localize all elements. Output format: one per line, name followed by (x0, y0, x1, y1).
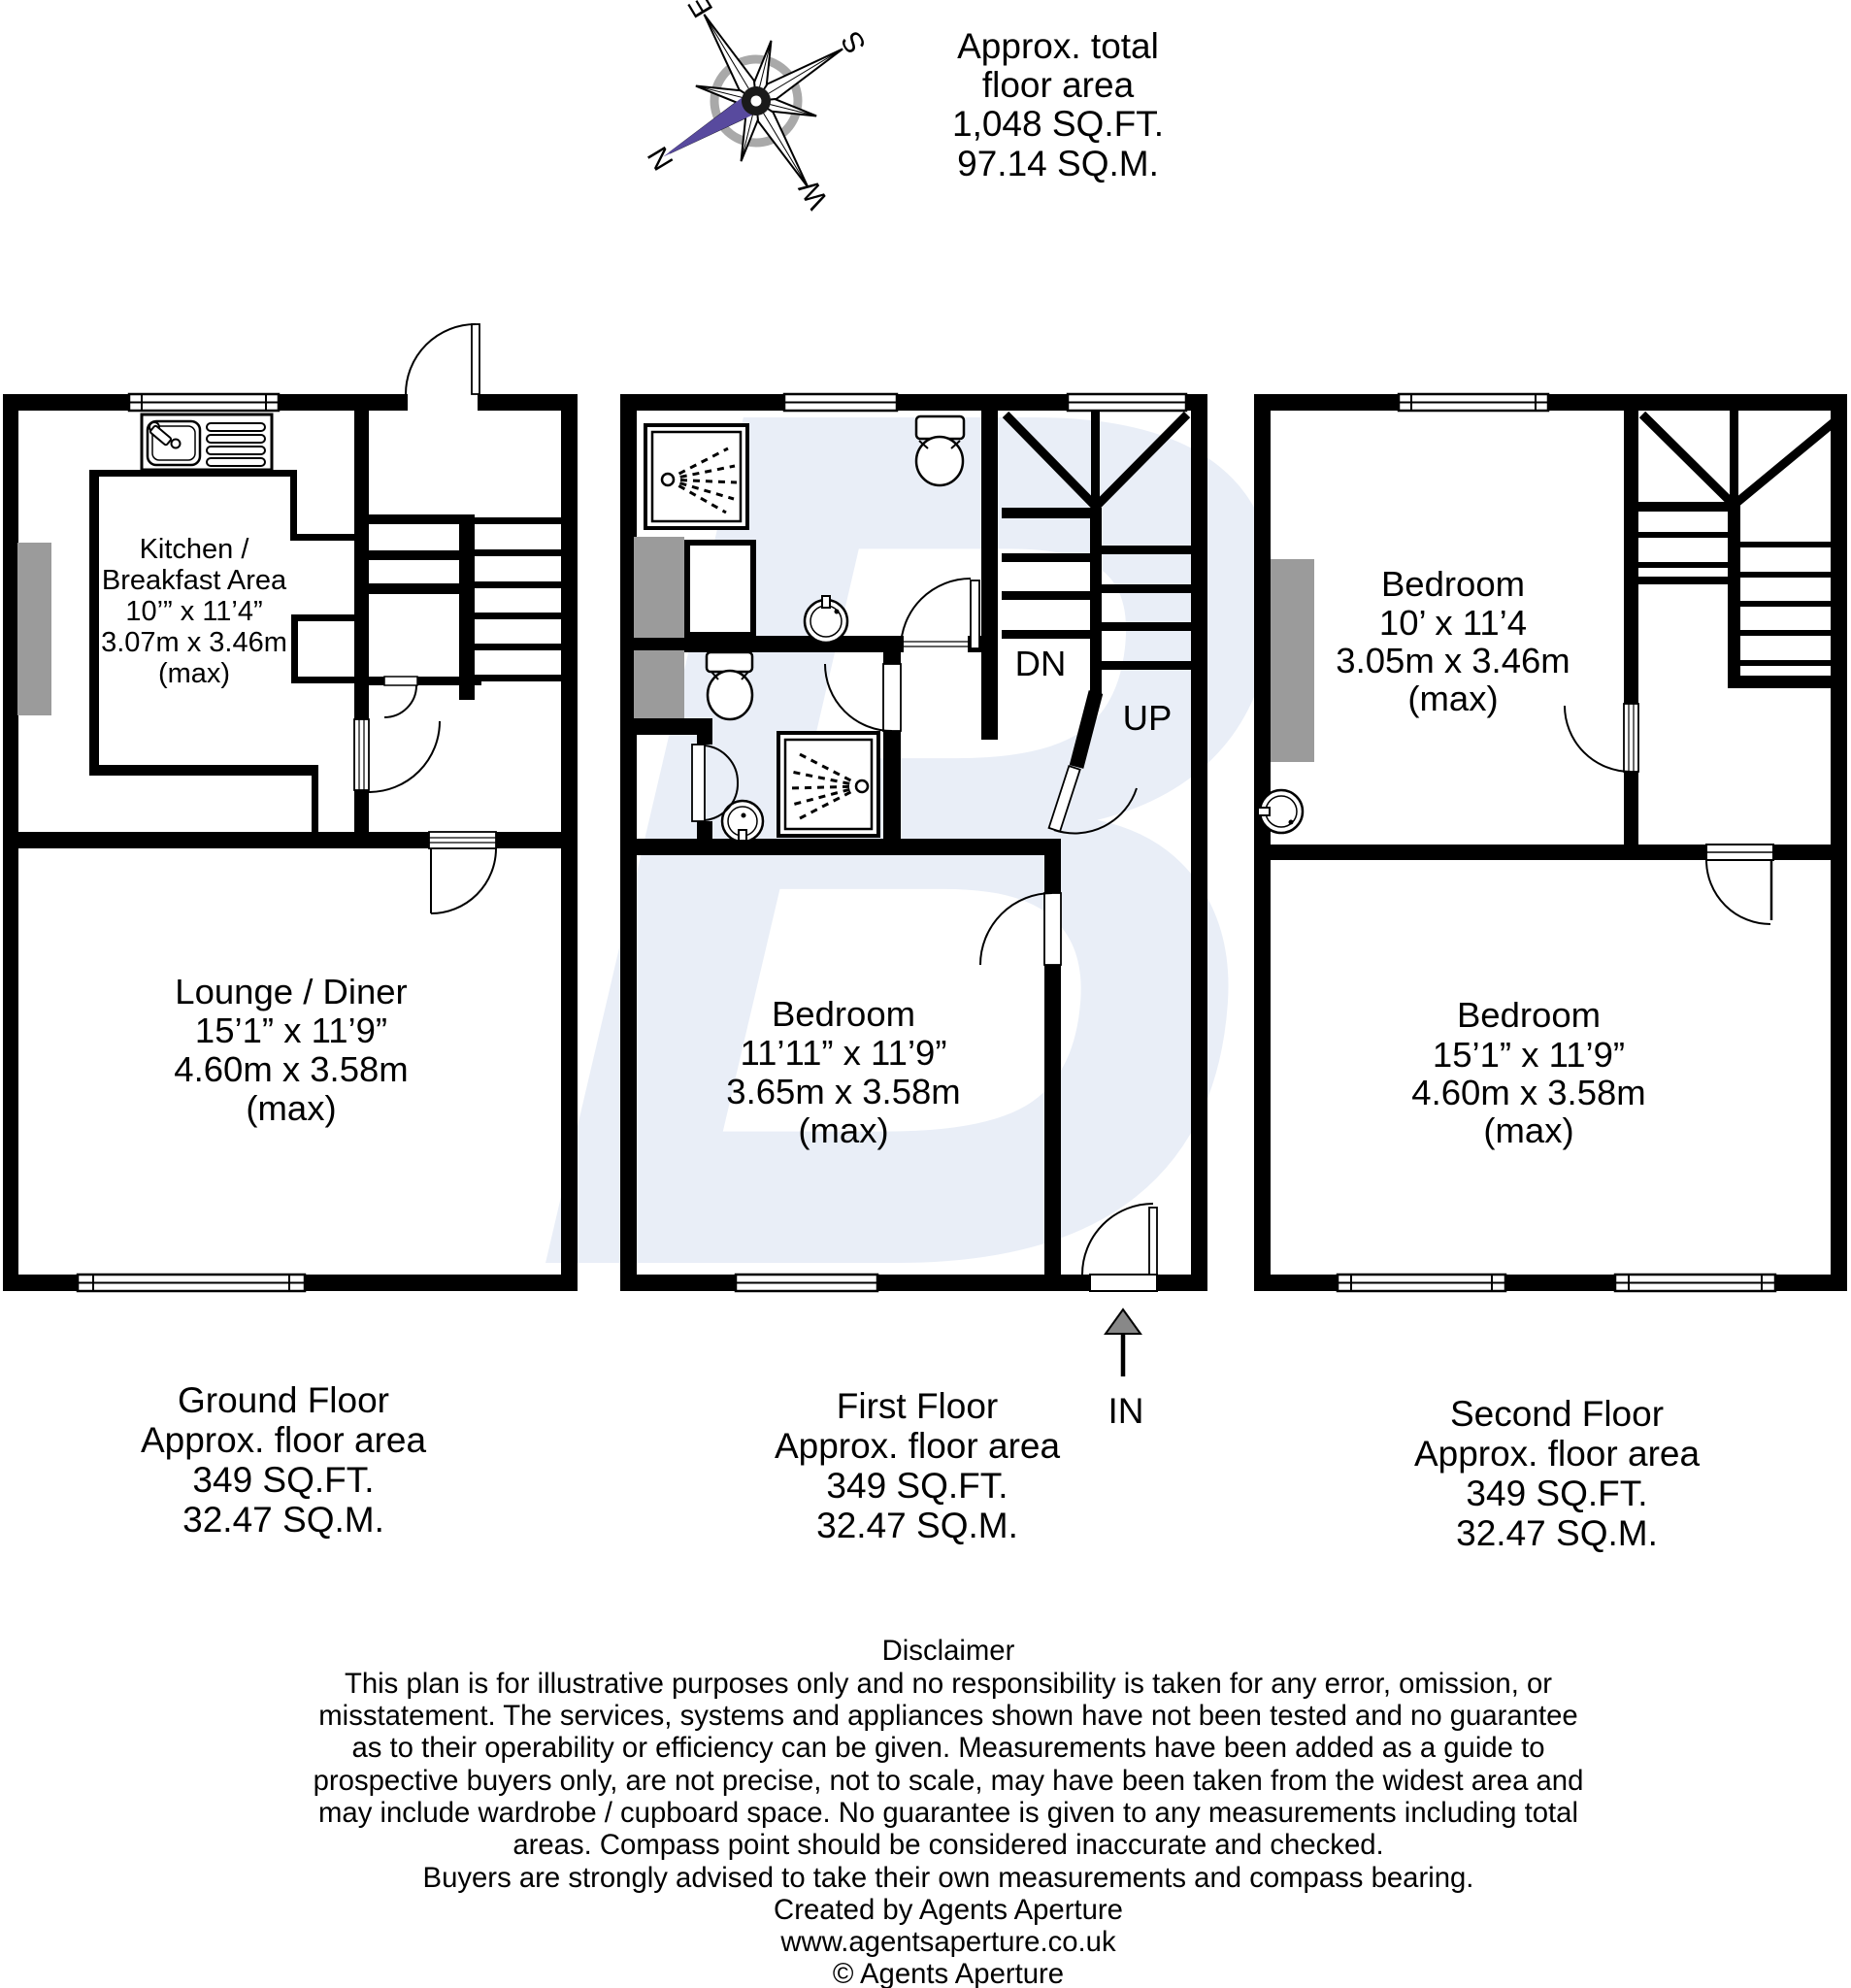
svg-text:DN: DN (1015, 644, 1067, 683)
svg-text:3.07m x 3.46m: 3.07m x 3.46m (101, 627, 287, 658)
svg-text:(max): (max) (1483, 1110, 1573, 1150)
svg-text:© Agents Aperture: © Agents Aperture (833, 1958, 1064, 1988)
svg-text:as to their operability or eff: as to their operability or efficiency ca… (351, 1732, 1544, 1764)
svg-text:3.05m x 3.46m: 3.05m x 3.46m (1336, 641, 1570, 680)
svg-text:10’” x 11’4”: 10’” x 11’4” (125, 596, 262, 627)
svg-text:(max): (max) (246, 1088, 336, 1128)
svg-text:32.47 SQ.M.: 32.47 SQ.M. (1456, 1513, 1658, 1553)
svg-text:www.agentsaperture.co.uk: www.agentsaperture.co.uk (779, 1926, 1116, 1958)
svg-text:may include wardrobe / cupboar: may include wardrobe / cupboard space. N… (318, 1797, 1578, 1829)
svg-text:IN: IN (1108, 1391, 1144, 1431)
svg-text:Approx. floor area: Approx. floor area (1414, 1434, 1701, 1474)
svg-text:32.47 SQ.M.: 32.47 SQ.M. (816, 1506, 1018, 1545)
svg-text:areas. Compass point should be: areas. Compass point should be considere… (512, 1829, 1383, 1861)
svg-text:15’1” x 11’9”: 15’1” x 11’9” (195, 1011, 387, 1050)
svg-text:Approx. total: Approx. total (957, 26, 1159, 66)
svg-text:10’ x 11’4: 10’ x 11’4 (1379, 603, 1527, 643)
svg-text:32.47 SQ.M.: 32.47 SQ.M. (182, 1500, 384, 1540)
svg-text:1,048 SQ.FT.: 1,048 SQ.FT. (952, 104, 1164, 144)
svg-text:4.60m x 3.58m: 4.60m x 3.58m (1411, 1073, 1645, 1112)
svg-text:prospective buyers only, are n: prospective buyers only, are not precise… (314, 1765, 1584, 1797)
svg-text:Disclaimer: Disclaimer (882, 1635, 1015, 1667)
svg-text:(max): (max) (158, 658, 230, 689)
svg-text:First Floor: First Floor (837, 1386, 999, 1426)
svg-text:Buyers are strongly advised to: Buyers are strongly advised to take thei… (423, 1862, 1474, 1894)
svg-text:Breakfast Area: Breakfast Area (102, 565, 287, 596)
svg-text:Kitchen /: Kitchen / (140, 534, 250, 565)
svg-text:Created by Agents Aperture: Created by Agents Aperture (774, 1894, 1123, 1926)
svg-text:Ground Floor: Ground Floor (178, 1380, 389, 1420)
svg-text:349 SQ.FT.: 349 SQ.FT. (192, 1460, 374, 1500)
svg-text:Approx. floor area: Approx. floor area (775, 1426, 1061, 1466)
svg-text:Bedroom: Bedroom (1381, 564, 1525, 604)
svg-text:Approx. floor area: Approx. floor area (141, 1420, 427, 1460)
svg-text:4.60m x 3.58m: 4.60m x 3.58m (174, 1049, 408, 1089)
svg-text:Second Floor: Second Floor (1450, 1394, 1664, 1434)
svg-text:3.65m x 3.58m: 3.65m x 3.58m (726, 1072, 960, 1111)
svg-text:misstatement. The services, sy: misstatement. The services, systems and … (318, 1700, 1577, 1732)
svg-text:97.14 SQ.M.: 97.14 SQ.M. (957, 144, 1159, 183)
svg-text:This plan is for illustrative: This plan is for illustrative purposes o… (345, 1668, 1552, 1700)
svg-text:11’11” x 11’9”: 11’11” x 11’9” (740, 1033, 946, 1073)
svg-text:(max): (max) (798, 1110, 888, 1150)
svg-text:floor area: floor area (982, 65, 1135, 105)
svg-text:349 SQ.FT.: 349 SQ.FT. (826, 1466, 1008, 1506)
svg-text:(max): (max) (1407, 679, 1498, 718)
svg-text:Bedroom: Bedroom (1457, 995, 1601, 1035)
svg-text:Bedroom: Bedroom (772, 994, 915, 1034)
svg-text:349 SQ.FT.: 349 SQ.FT. (1466, 1474, 1647, 1513)
svg-text:15’1” x 11’9”: 15’1” x 11’9” (1433, 1035, 1625, 1075)
svg-text:UP: UP (1123, 698, 1173, 738)
svg-text:Lounge / Diner: Lounge / Diner (175, 972, 407, 1011)
